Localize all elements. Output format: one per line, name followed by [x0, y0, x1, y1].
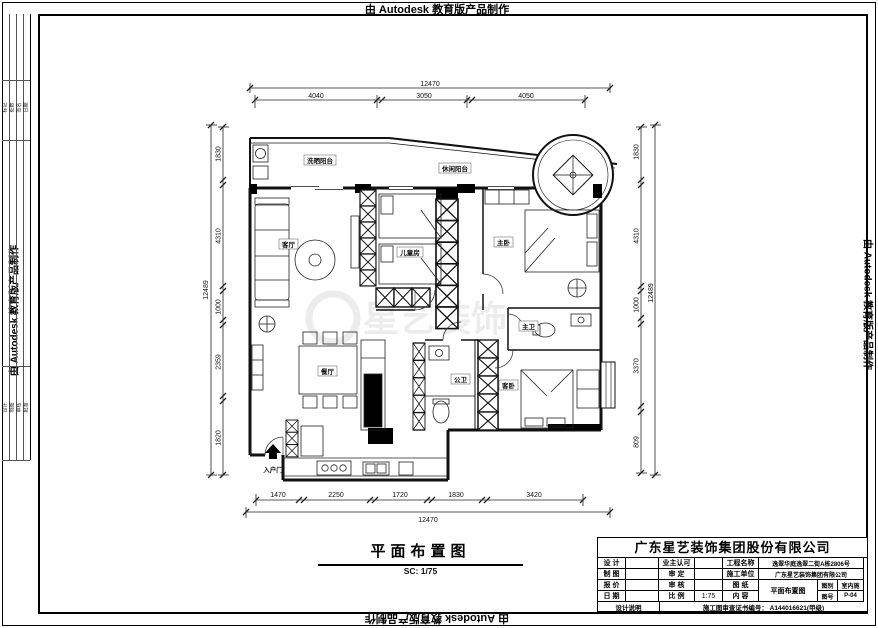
- tb-scale-label: 比 例: [659, 591, 695, 602]
- tb-date-value: [626, 591, 659, 602]
- tb-check-label: 审 核: [659, 580, 695, 591]
- tb-cert: 施工图审查证书编号： A144016621(甲级): [660, 602, 867, 611]
- room-label-kids: 儿童房: [399, 248, 420, 257]
- dim: 4050: [518, 93, 534, 100]
- tb-category-value: 室内施: [838, 580, 864, 591]
- room-label-living: 客厅: [281, 240, 296, 249]
- tb-notes-label: 设计说明: [598, 602, 660, 611]
- tb-sheet-label: 图 纸: [723, 580, 759, 591]
- company-name: 广东星艺装饰集团股份有限公司: [598, 538, 867, 558]
- strip-label: 签名: [16, 88, 23, 128]
- tb-check-value: [695, 580, 723, 591]
- tb-cert-value: A144016621(甲级): [770, 602, 825, 612]
- watermark-right: 由 Autodesk 教育版产品制作: [862, 205, 877, 405]
- tb-project-value: 逸翠华庭逸翠二街A栋2806号: [759, 558, 864, 569]
- tb-draft-value: [626, 569, 659, 580]
- dim: 3420: [526, 492, 542, 499]
- tb-category-label: 图别: [818, 580, 838, 591]
- strip-label: 设计: [2, 388, 9, 428]
- tb-project-label: 工程名称: [723, 558, 759, 569]
- tb-approve-value: [695, 569, 723, 580]
- dim: 4310: [634, 228, 641, 244]
- strip-label: 批准: [23, 388, 30, 428]
- dim-bottom-total: 12470: [418, 517, 438, 524]
- dim: 1820: [216, 430, 223, 446]
- tb-no-value: P-04: [838, 591, 864, 602]
- room-label-balcony-left: 洗晒阳台: [307, 156, 334, 165]
- dim: 1830: [448, 492, 464, 499]
- strip-label: 日期: [23, 88, 30, 128]
- room-label-balcony-right: 休闲阳台: [441, 164, 469, 173]
- watermark-bottom: 由 Autodesk 教育版产品制作: [317, 611, 557, 627]
- room-label-bath-master: 主卫: [522, 322, 536, 331]
- dim: 3050: [416, 93, 432, 100]
- dim-left-total: 12489: [203, 280, 210, 300]
- tb-draft-label: 制 图: [598, 569, 626, 580]
- room-label-guest: 客卧: [501, 381, 516, 390]
- dimensions-bottom: [243, 494, 613, 518]
- tb-cert-label: 施工图审查证书编号：: [703, 602, 768, 612]
- title-block: 广东星艺装饰集团股份有限公司 设 计 业主认可 工程名称 逸翠华庭逸翠二街A栋2…: [597, 537, 868, 612]
- tb-date-label: 日 期: [598, 591, 626, 602]
- dim: 809: [634, 436, 641, 448]
- strip-label: 制图: [9, 388, 16, 428]
- dim: 1830: [634, 144, 641, 160]
- strip-label: 审核: [16, 388, 23, 428]
- drawing-title: 平面布置图: [318, 540, 523, 566]
- tb-builder-value: 广东星艺装饰集团有限公司: [759, 569, 864, 580]
- tb-builder-label: 施工单位: [723, 569, 759, 580]
- dim: 1000: [216, 299, 223, 315]
- tb-owner-value: [695, 558, 723, 569]
- room-label-bath-public: 公卫: [454, 376, 468, 384]
- tb-owner-label: 业主认可: [659, 558, 695, 569]
- dim: 1470: [270, 492, 286, 499]
- room-label-dining: 餐厅: [320, 367, 335, 376]
- tb-design-label: 设 计: [598, 558, 626, 569]
- dim: 2250: [328, 492, 344, 499]
- tb-approve-label: 审 定: [659, 569, 695, 580]
- dim: 1830: [216, 146, 223, 162]
- dim: 2359: [216, 354, 223, 370]
- tb-design-value: [626, 558, 659, 569]
- room-label-entry: 入户门: [262, 465, 283, 474]
- watermark-top: 由 Autodesk 教育版产品制作: [317, 1, 557, 17]
- turret-bay: [533, 135, 613, 215]
- floor-plan: 星艺装饰 12470 4040 3050 4050: [203, 78, 673, 538]
- dim: 4040: [308, 93, 324, 100]
- dim: 3370: [634, 358, 641, 374]
- strip-label: 处数: [9, 88, 16, 128]
- tb-scale-value: 1:75: [695, 591, 723, 602]
- room-label-master: 主卧: [497, 238, 511, 247]
- tb-quote-label: 报 价: [598, 580, 626, 591]
- tb-sheet-value: 平面布置图: [759, 580, 818, 602]
- dim-top-total: 12470: [420, 81, 440, 88]
- dim: 4310: [216, 228, 223, 244]
- strip-label: 标记: [2, 88, 9, 128]
- tb-quote-value: [626, 580, 659, 591]
- dim-right-total: 12489: [648, 283, 655, 303]
- revision-strip: 标记 处数 签名 日期 设计 制图 审核 批准: [2, 14, 31, 460]
- drawing-scale-note: SC: 1/75: [318, 566, 523, 576]
- bay-window: [601, 362, 615, 408]
- tb-no-label: 图号: [818, 591, 838, 602]
- dim: 1000: [634, 297, 641, 313]
- tb-content-label: 内 容: [723, 591, 759, 602]
- drawing-sheet: 由 Autodesk 教育版产品制作 由 Autodesk 教育版产品制作 由 …: [0, 0, 878, 628]
- dim: 1720: [392, 492, 408, 499]
